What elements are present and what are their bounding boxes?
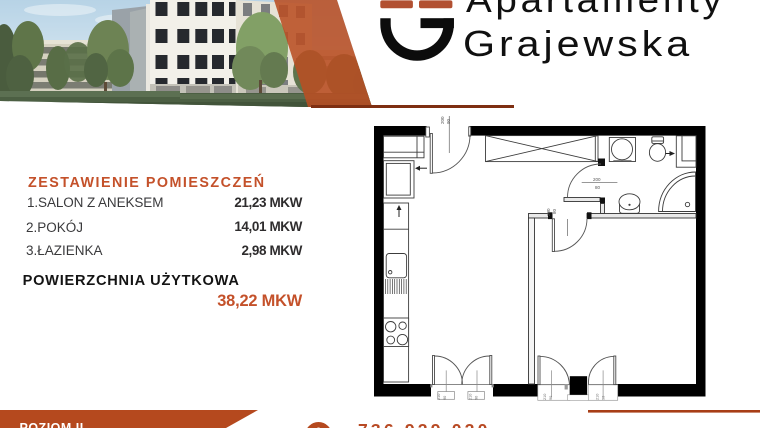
svg-text:200: 200	[440, 116, 445, 124]
svg-text:90: 90	[549, 396, 553, 400]
svg-text:210: 210	[469, 394, 473, 400]
svg-text:200: 200	[593, 177, 601, 182]
svg-text:210: 210	[543, 394, 547, 400]
svg-text:90: 90	[446, 118, 451, 124]
svg-text:200: 200	[546, 208, 551, 216]
svg-text:210: 210	[437, 394, 441, 400]
svg-text:80: 80	[552, 208, 557, 214]
svg-text:210: 210	[596, 394, 600, 400]
svg-text:90: 90	[475, 396, 479, 400]
svg-text:90: 90	[443, 396, 447, 400]
svg-text:90: 90	[602, 396, 606, 400]
svg-text:80: 80	[595, 185, 601, 190]
